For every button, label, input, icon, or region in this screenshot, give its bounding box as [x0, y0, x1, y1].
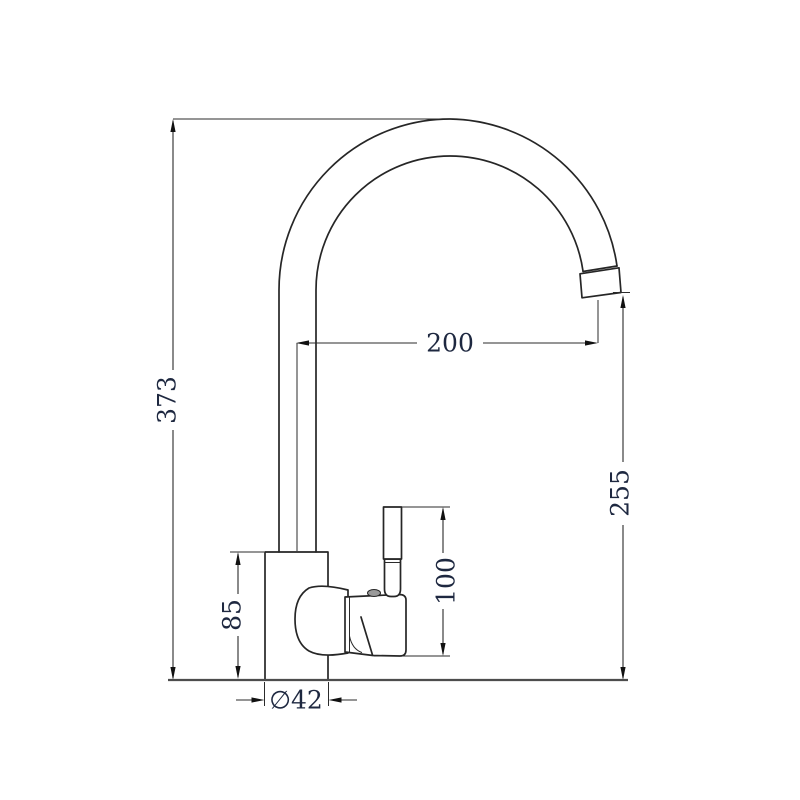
dim-body-height-label: 85 — [218, 599, 247, 631]
dim-373-arrow-top — [170, 119, 175, 132]
dim-outlet-height-label: 255 — [606, 469, 635, 517]
dim-spout-reach-label: 200 — [426, 329, 474, 358]
faucet-technical-drawing: 373 200 255 100 85 ∅42 — [0, 0, 800, 800]
dim-373-arrow-bottom — [170, 667, 175, 680]
dim-85-arrow-bottom — [235, 666, 240, 679]
dim-overall-height-label: 373 — [153, 376, 182, 424]
dim-200-arrow-right — [585, 340, 598, 345]
dim-handle-height-label: 100 — [432, 557, 461, 605]
handle-lever-upper — [384, 507, 402, 559]
dim-200-arrow-left — [296, 340, 309, 345]
dim-42-arrow-left — [252, 697, 265, 702]
cartridge-cap-dome — [368, 590, 381, 597]
dim-100-arrow-bottom — [440, 643, 445, 656]
dim-base-diameter-label: ∅42 — [269, 686, 323, 715]
drawing-canvas: 373 200 255 100 85 ∅42 — [0, 0, 800, 800]
aerator-tip — [580, 268, 621, 298]
dim-255-arrow-bottom — [620, 667, 625, 680]
dim-100-arrow-top — [440, 507, 445, 520]
ball-joint-dome — [295, 586, 348, 655]
dim-255-arrow-top — [620, 295, 625, 308]
dim-85-arrow-top — [235, 552, 240, 565]
handle-lever-lower — [385, 559, 401, 597]
dim-42-arrow-right — [329, 697, 342, 702]
